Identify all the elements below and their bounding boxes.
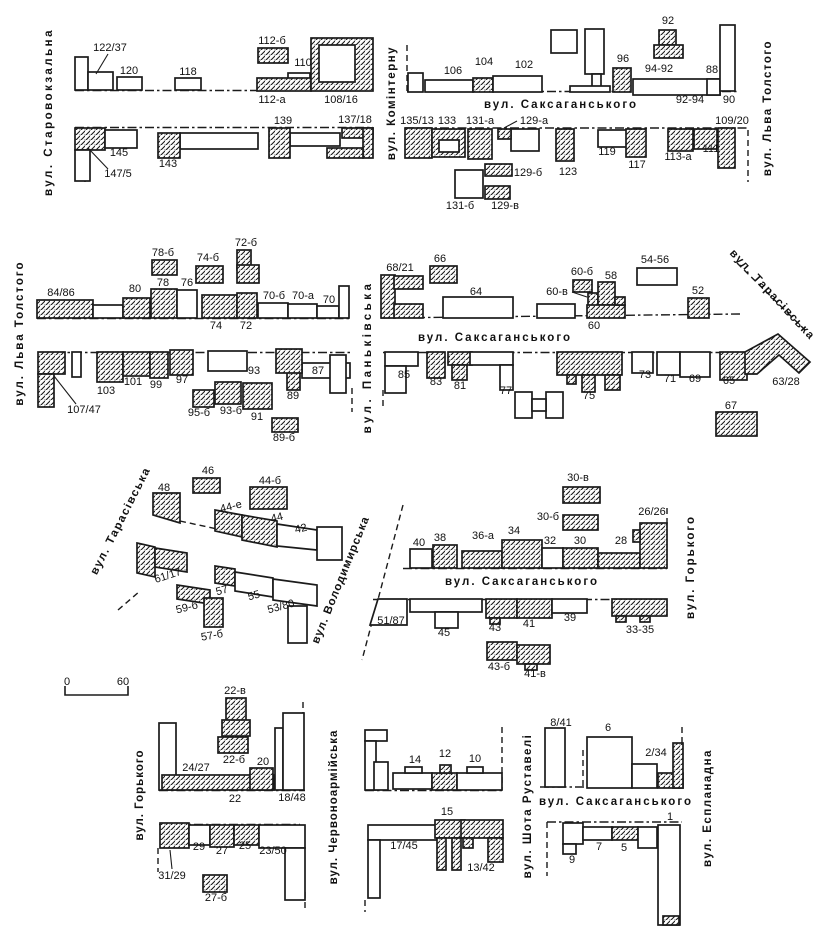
building-shape <box>570 86 610 92</box>
building-label: 26/26 <box>638 506 666 518</box>
building-shape <box>137 543 155 577</box>
building-shape <box>517 645 550 664</box>
building-unlabeled <box>638 827 657 848</box>
building-78-б: 78-б <box>152 247 177 275</box>
building-shape <box>455 170 483 198</box>
building-label: 74-б <box>197 252 219 264</box>
building-shape <box>563 487 600 503</box>
building-label: 102 <box>515 59 533 71</box>
street-name-label: вул. Горького <box>685 515 697 619</box>
building-shape <box>638 827 657 848</box>
building-label: 131-а <box>466 115 495 127</box>
building-74-б: 74-б <box>196 252 223 283</box>
building-shape <box>283 713 304 790</box>
building-117: 117 <box>626 129 646 171</box>
building-shape <box>463 838 473 848</box>
building-label: 81 <box>454 380 466 392</box>
building-label: 139 <box>274 115 292 127</box>
building-shape <box>515 392 532 418</box>
building-shape <box>612 599 667 616</box>
building-89-б: 89-б <box>272 418 298 444</box>
building-label: 12 <box>439 748 451 760</box>
building-shape <box>633 530 640 542</box>
building-label: 7 <box>596 841 602 853</box>
building-label: 54-56 <box>641 254 669 266</box>
building-shape <box>659 30 676 45</box>
building-label: 10 <box>469 753 481 765</box>
building-shape <box>673 743 683 788</box>
building-label: 32 <box>544 535 556 547</box>
building-shape <box>276 349 302 373</box>
building-135/13: 135/13 <box>400 115 434 158</box>
building-label: 89-б <box>273 432 295 444</box>
building-shape <box>203 875 227 892</box>
building-label: 108/16 <box>324 94 358 106</box>
scale-bar-label-start: 0 <box>64 676 70 688</box>
building-label: 63/28 <box>772 376 800 388</box>
building-shape <box>532 399 546 411</box>
building-shape <box>218 737 248 753</box>
building-shape <box>487 642 517 660</box>
building-shape <box>226 698 246 722</box>
building-label: 143 <box>159 158 177 170</box>
building-shape <box>363 128 373 158</box>
building-shape <box>461 820 503 838</box>
building-label: 70-б <box>263 290 285 302</box>
street-name-label: вул. Старовокзальна <box>43 28 55 196</box>
building-shape <box>38 374 54 407</box>
building-shape <box>202 295 237 318</box>
building-shape <box>640 616 650 622</box>
building-129-б: 129-б <box>485 164 542 179</box>
building-label: 85 <box>398 369 410 381</box>
building-unlabeled <box>663 916 679 925</box>
building-shape <box>468 129 492 159</box>
building-shape <box>88 72 113 90</box>
building-label: 60-в <box>546 286 568 298</box>
building-shape <box>75 57 88 90</box>
building-label: 38 <box>434 532 446 544</box>
street-name-label: вул. Шота Руставелі <box>522 734 534 879</box>
building-shape <box>368 825 437 840</box>
building-shape <box>488 838 503 862</box>
building-shape <box>585 29 604 74</box>
building-shape <box>537 304 575 318</box>
building-label: 131-б <box>446 200 474 212</box>
building-label: 101 <box>124 376 142 388</box>
building-88: 88 <box>706 64 720 95</box>
building-label: 30-в <box>567 472 589 484</box>
city-block-map: 122/37120118112-б110112-а108/16106104102… <box>0 0 833 935</box>
building-label: 68/21 <box>386 262 414 274</box>
building-label: 78 <box>157 277 169 289</box>
building-shape <box>598 282 615 305</box>
building-label: 30-б <box>537 511 559 523</box>
building-label: 71 <box>664 373 676 385</box>
building-label: 18/48 <box>278 792 306 804</box>
building-shape <box>583 827 612 840</box>
building-label: 33-35 <box>626 624 654 636</box>
building-unlabeled <box>511 129 539 151</box>
building-unlabeled <box>180 133 258 149</box>
building-label: 64 <box>470 286 482 298</box>
building-label: 8/41 <box>550 717 571 729</box>
building-shape <box>385 352 418 366</box>
building-shape <box>272 418 298 432</box>
building-93-б: 93-б <box>215 382 242 417</box>
building-shape <box>105 130 137 148</box>
building-label: 23/50 <box>259 845 287 857</box>
building-shape <box>563 823 583 844</box>
building-shape <box>716 412 757 436</box>
building-shape <box>288 304 317 318</box>
building-label: 112-а <box>258 94 286 106</box>
building-label: 80 <box>129 283 141 295</box>
building-label: 40 <box>413 537 425 549</box>
building-44-е: 44-е <box>215 498 243 537</box>
building-shape <box>170 350 193 375</box>
building-label: 109/20 <box>715 115 749 127</box>
building-shape <box>467 767 483 773</box>
building-label: 113-а <box>664 151 692 163</box>
building-label: 65 <box>723 375 735 387</box>
building-shape <box>657 352 680 375</box>
building-shape <box>452 365 467 380</box>
building-shape <box>269 128 290 158</box>
building-shape <box>485 164 512 176</box>
building-label: 129-б <box>514 167 542 179</box>
building-label: 5 <box>621 842 627 854</box>
building-label: 99 <box>150 379 162 391</box>
building-shape <box>175 78 201 90</box>
building-shape <box>663 916 679 925</box>
scale-bar-label-end: 60 <box>117 676 129 688</box>
building-unlabeled <box>290 133 340 146</box>
building-shape <box>180 133 258 149</box>
building-label: 58 <box>605 270 617 282</box>
building-label: 147/5 <box>104 168 132 180</box>
building-shape <box>616 616 626 622</box>
building-label: 28 <box>615 535 627 547</box>
street-name-label: вул. Горького <box>134 749 146 840</box>
building-shape <box>72 352 81 377</box>
building-shape <box>612 827 638 840</box>
building-shape <box>93 305 123 318</box>
building-label: 30 <box>574 535 586 547</box>
building-shape <box>626 129 646 157</box>
building-113-а: 113-а <box>664 129 693 163</box>
building-shape <box>394 304 423 318</box>
building-label: 145 <box>110 147 128 159</box>
building-shape <box>688 298 709 318</box>
building-shape <box>587 305 625 318</box>
building-shape <box>215 382 241 404</box>
building-shape <box>556 129 574 161</box>
building-shape <box>365 730 387 741</box>
building-shape <box>498 129 511 139</box>
building-shape <box>327 148 363 158</box>
street-name-label: вул. Льва Толстого <box>14 260 26 405</box>
building-shape <box>567 375 576 384</box>
building-label: 43-б <box>488 661 510 673</box>
building-shape <box>37 300 93 318</box>
building-shape <box>368 840 380 898</box>
building-label: 119 <box>598 146 616 158</box>
building-label: 76 <box>181 277 193 289</box>
building-shape <box>288 606 307 643</box>
building-label: 94-92 <box>645 63 673 75</box>
building-shape <box>511 129 539 151</box>
building-label: 44-б <box>259 475 281 487</box>
building-shape <box>640 523 667 568</box>
building-shape <box>196 266 223 283</box>
building-shape <box>443 297 513 318</box>
building-label: 46 <box>202 465 214 477</box>
building-label: 129-в <box>491 200 519 212</box>
map-figure: 122/37120118112-б110112-а108/16106104102… <box>0 0 833 935</box>
building-label: 48 <box>158 482 170 494</box>
building-shape <box>75 128 105 150</box>
building-label: 45 <box>438 627 450 639</box>
building-shape <box>117 77 142 90</box>
building-shape <box>658 825 680 925</box>
building-shape <box>473 78 493 92</box>
building-label: 107/47 <box>67 404 101 416</box>
building-shape <box>448 352 472 365</box>
building-label: 60 <box>588 320 600 332</box>
building-label: 67 <box>725 400 737 412</box>
building-label: 88 <box>706 64 718 76</box>
building-shape <box>394 276 423 289</box>
building-shape <box>208 351 247 371</box>
building-123: 123 <box>556 129 577 178</box>
building-label: 17/45 <box>390 840 418 852</box>
building-label: 103 <box>97 385 115 397</box>
building-label: 72-б <box>235 237 257 249</box>
building-shape <box>250 768 273 790</box>
building-shape <box>668 129 693 151</box>
building-shape <box>452 838 461 870</box>
building-label: 106 <box>444 65 462 77</box>
building-shape <box>654 45 683 58</box>
building-label: 20 <box>257 756 269 768</box>
building-label: 120 <box>120 65 138 77</box>
building-shape <box>517 599 552 618</box>
building-label: 123 <box>559 166 577 178</box>
street-name-label: вул. Паньківська <box>362 281 374 434</box>
building-label: 137/18 <box>338 114 372 126</box>
building-unlabeled <box>408 73 423 92</box>
building-27-б: 27-б <box>203 875 227 904</box>
building-shape <box>393 773 432 789</box>
building-shape <box>160 823 189 848</box>
building-label: 22 <box>229 793 241 805</box>
building-shape <box>250 487 287 509</box>
building-label: 9 <box>569 854 575 866</box>
building-label: 92-94 <box>676 94 704 106</box>
building-143: 143 <box>158 133 180 170</box>
building-90: 90 <box>720 25 735 106</box>
building-label: 43 <box>489 622 501 634</box>
building-label: 31/29 <box>158 870 186 882</box>
building-label: 69 <box>689 373 701 385</box>
building-shape <box>123 352 150 376</box>
building-shape <box>437 838 446 870</box>
building-shape <box>592 74 601 87</box>
building-shape <box>718 128 735 168</box>
building-label: 51/87 <box>377 615 405 627</box>
building-label: 14 <box>409 754 421 766</box>
building-shape <box>258 303 288 318</box>
building-shape <box>374 762 388 790</box>
building-label: 27 <box>216 845 228 857</box>
building-unlabeled <box>75 150 90 181</box>
building-unlabeled <box>72 352 81 377</box>
building-shape <box>151 289 177 318</box>
building-shape <box>290 133 340 146</box>
building-label: 70 <box>323 294 335 306</box>
building-shape <box>193 390 214 407</box>
building-shape <box>462 551 502 568</box>
street-name-label: вул. Саксаганського <box>445 576 599 588</box>
building-shape <box>546 392 563 418</box>
building-shape <box>257 78 311 91</box>
building-1: 1 <box>658 811 680 925</box>
building-shape <box>613 68 631 92</box>
building-label: 41 <box>523 618 535 630</box>
building-shape <box>430 266 457 283</box>
building-label: 27-б <box>205 892 227 904</box>
building-label: 29 <box>193 841 205 853</box>
building-shape <box>433 545 457 568</box>
building-70-б: 70-б <box>258 290 288 318</box>
building-shape <box>545 728 565 787</box>
building-label: 84/86 <box>47 287 75 299</box>
building-shape <box>720 25 735 91</box>
building-label: 36-а <box>472 530 495 542</box>
building-label: 70-а <box>292 290 315 302</box>
building-label: 15 <box>441 806 453 818</box>
building-label: 96 <box>617 53 629 65</box>
building-shape <box>317 527 342 560</box>
street-name-label: вул. Комінтерну <box>386 46 398 160</box>
street-name-label: вул. Саксаганського <box>484 99 638 111</box>
street-name-label: вул. Саксаганського <box>539 796 693 808</box>
building-shape <box>587 737 632 788</box>
building-shape <box>486 599 517 618</box>
building-shape <box>410 599 482 612</box>
building-label: 95-б <box>188 407 210 419</box>
building-label: 93-б <box>220 405 242 417</box>
building-label: 52 <box>692 285 704 297</box>
building-label: 110 <box>294 57 312 69</box>
building-shape <box>485 186 510 199</box>
building-label: 133 <box>438 115 456 127</box>
building-shape <box>502 540 542 568</box>
building-shape <box>317 306 339 318</box>
building-shape <box>563 515 598 530</box>
street-name-label: вул. Льва Толстого <box>762 40 774 176</box>
street-name-label: вул. Червоноармійська <box>328 730 340 885</box>
building-label: 91 <box>251 411 263 423</box>
building-courtyard <box>319 45 355 82</box>
building-label: 2/34 <box>645 747 666 759</box>
building-shape <box>598 553 640 568</box>
building-112-б: 112-б <box>258 35 288 63</box>
building-label: 78-б <box>152 247 174 259</box>
building-label: 90 <box>723 94 735 106</box>
building-shape <box>598 130 628 147</box>
building-131-а: 131-а <box>466 115 495 159</box>
building-shape <box>563 548 598 568</box>
building-shape <box>542 548 563 568</box>
building-label: 73 <box>639 369 651 381</box>
building-label: 122/37 <box>93 42 127 54</box>
building-label: 117 <box>628 159 646 171</box>
building-label: 22-б <box>223 754 245 766</box>
building-57-б: 57-б <box>200 598 224 644</box>
building-shape <box>237 293 257 318</box>
building-shape <box>152 260 177 275</box>
building-label: 13/42 <box>467 862 495 874</box>
building-shape <box>563 844 576 854</box>
building-label: 34 <box>508 525 520 537</box>
building-shape <box>193 478 220 493</box>
building-shape <box>440 765 451 773</box>
building-shape <box>432 773 457 790</box>
building-courtyard <box>439 140 459 152</box>
building-label: 39 <box>564 612 576 624</box>
building-label: 60-б <box>571 266 593 278</box>
building-shape <box>177 290 197 318</box>
building-label: 74 <box>210 320 222 332</box>
building-70-а: 70-а <box>288 290 317 318</box>
building-shape <box>339 286 349 318</box>
building-22-б: 22-б <box>218 737 248 766</box>
building-shape <box>615 297 625 305</box>
building-label: 93 <box>248 365 260 377</box>
building-label: 135/13 <box>400 115 434 127</box>
building-shape <box>38 352 65 374</box>
building-label: 89 <box>287 390 299 402</box>
building-shape <box>551 30 577 53</box>
building-shape <box>275 728 283 790</box>
building-label: 104 <box>475 56 493 68</box>
building-shape <box>557 352 622 375</box>
building-shape <box>573 280 592 292</box>
building-label: 75 <box>583 390 595 402</box>
building-shape <box>707 79 720 95</box>
building-shape <box>381 275 395 318</box>
building-shape <box>97 352 123 382</box>
building-label: 97 <box>176 374 188 386</box>
building-label: 83 <box>430 376 442 388</box>
building-label: 111 <box>703 143 720 155</box>
building-shape <box>405 128 432 158</box>
building-shape <box>123 298 150 318</box>
building-shape <box>222 720 250 736</box>
building-shape <box>408 73 423 92</box>
building-shape <box>632 764 657 788</box>
building-shape <box>435 612 458 628</box>
building-shape <box>493 76 542 92</box>
building-shape <box>243 383 272 409</box>
building-shape <box>75 150 90 181</box>
building-label: 6 <box>605 722 611 734</box>
building-shape <box>210 825 234 847</box>
building-shape <box>457 773 502 790</box>
building-label: 92 <box>662 15 674 27</box>
